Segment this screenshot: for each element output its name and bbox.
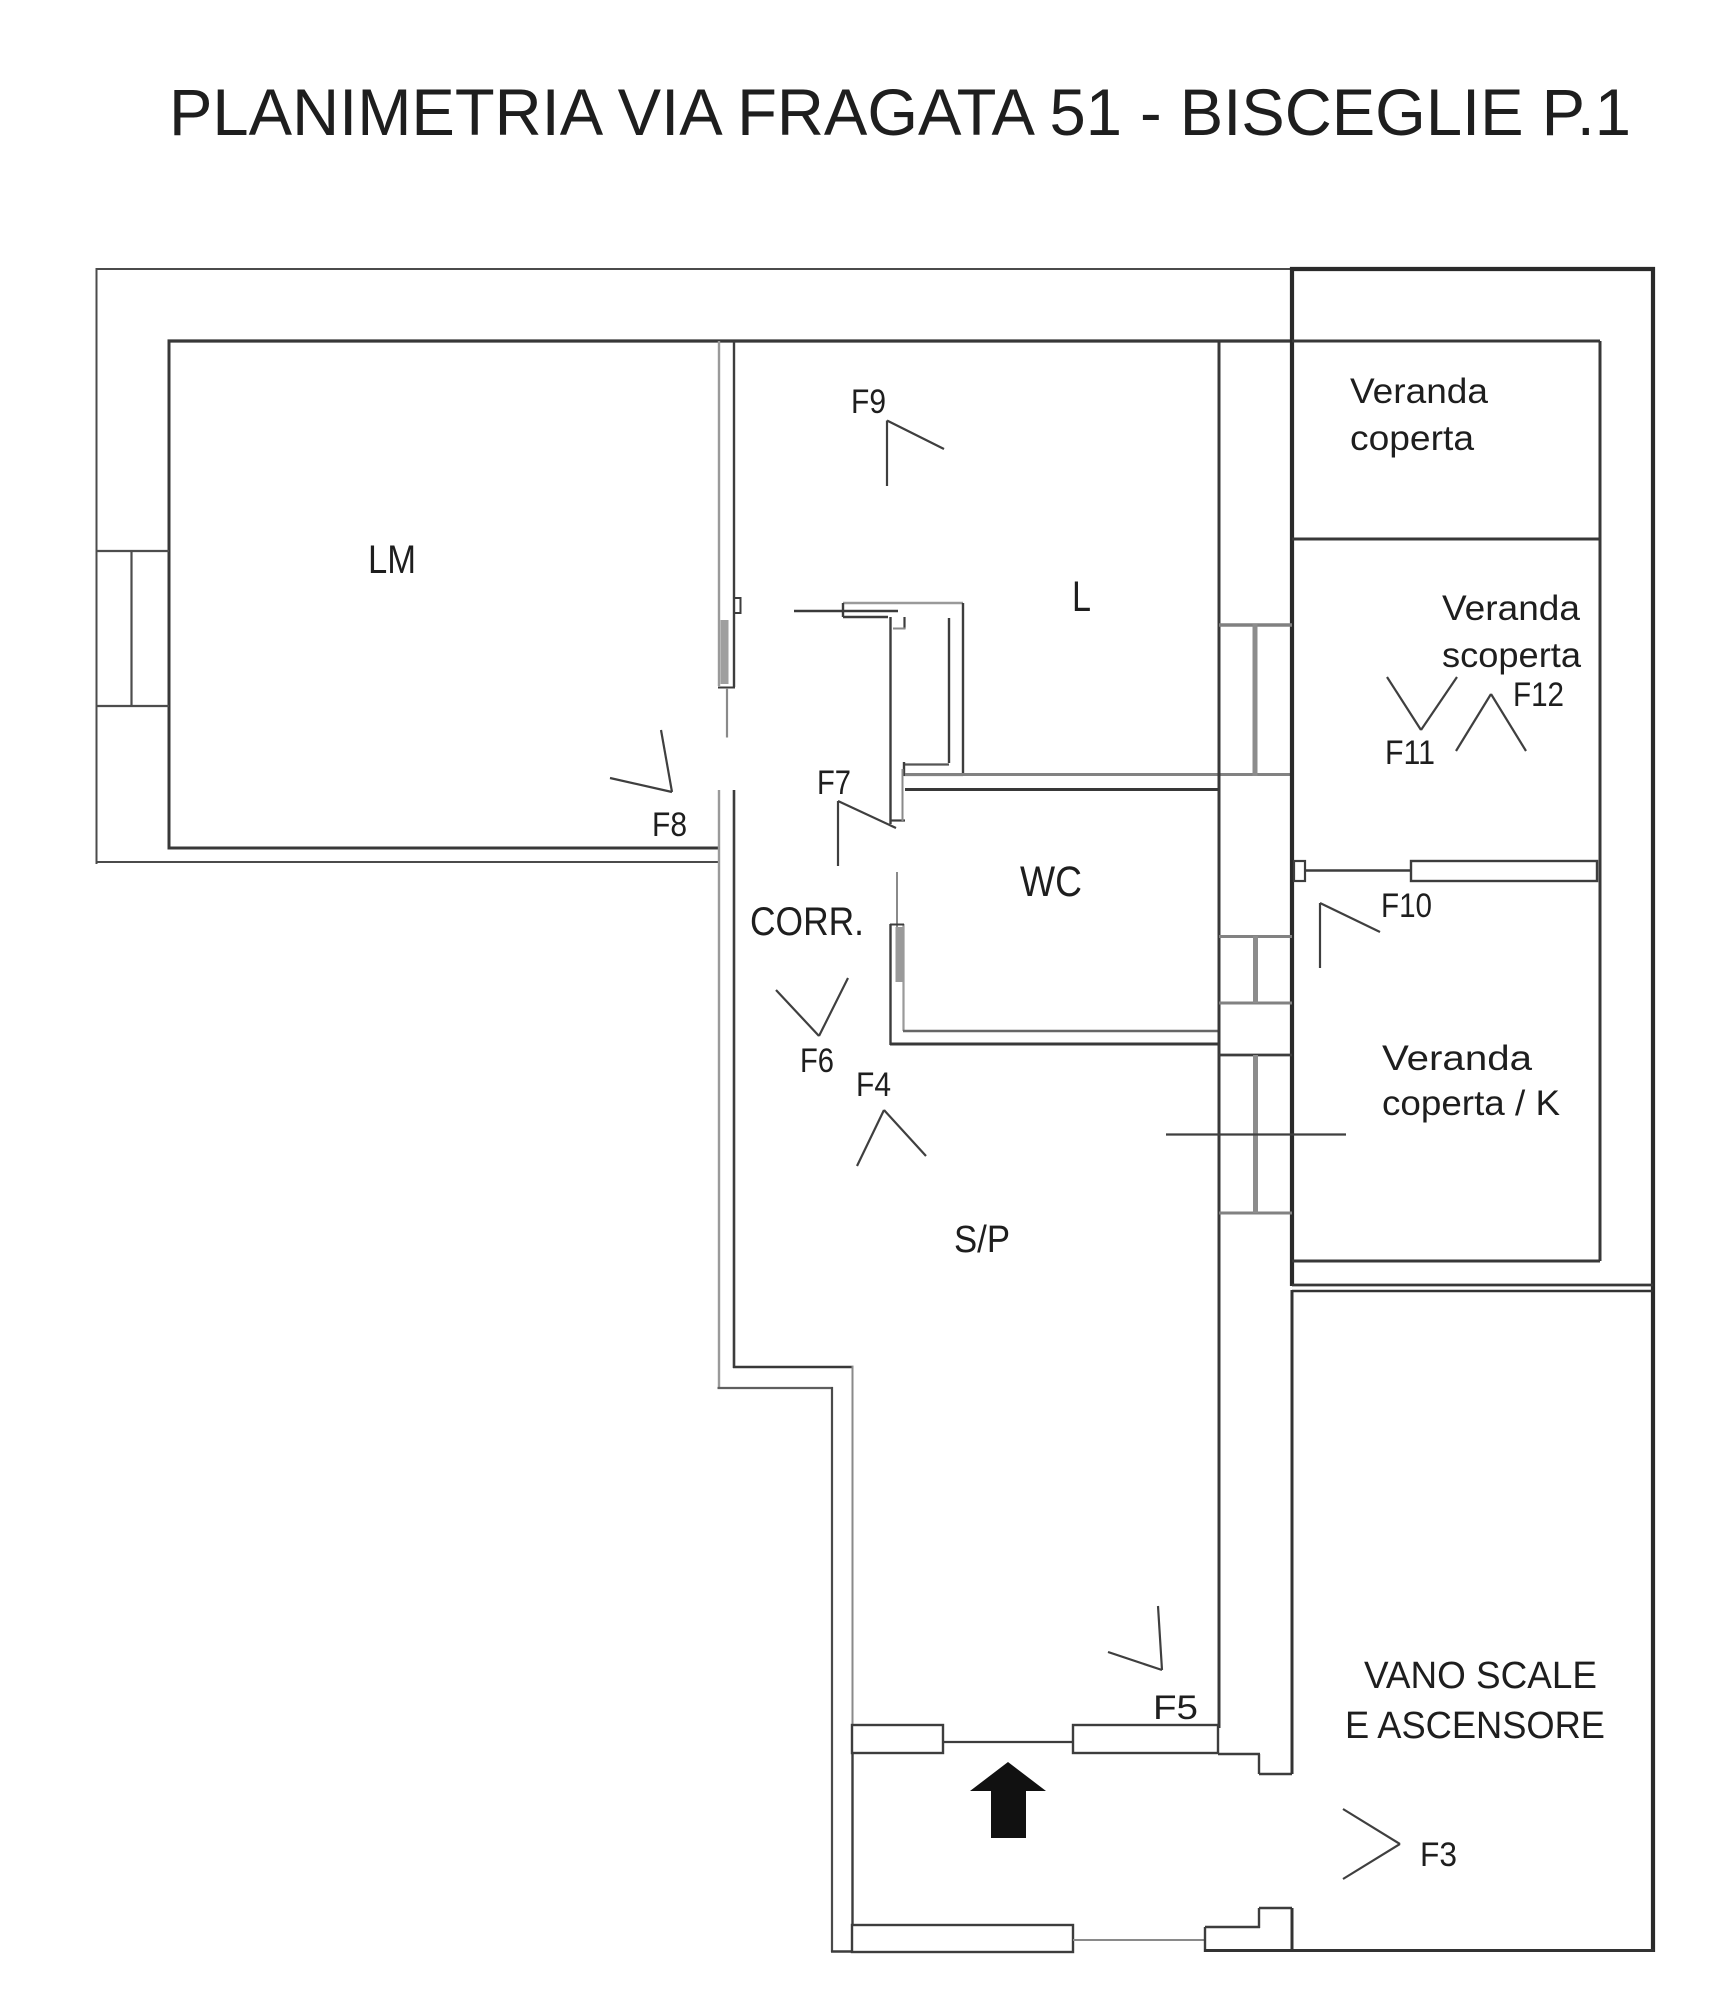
svg-text:PLANIMETRIA VIA FRAGATA 51 - B: PLANIMETRIA VIA FRAGATA 51 - BISCEGLIE P… xyxy=(169,75,1631,149)
svg-text:F11: F11 xyxy=(1385,734,1435,772)
svg-text:scoperta: scoperta xyxy=(1442,636,1582,675)
svg-text:F6: F6 xyxy=(800,1042,834,1080)
svg-text:F9: F9 xyxy=(851,383,886,421)
svg-text:F7: F7 xyxy=(817,764,851,802)
svg-text:S/P: S/P xyxy=(954,1219,1010,1261)
svg-text:Veranda: Veranda xyxy=(1382,1039,1533,1078)
svg-text:F3: F3 xyxy=(1420,1836,1457,1874)
svg-text:Veranda: Veranda xyxy=(1350,372,1489,411)
svg-text:LM: LM xyxy=(368,538,416,582)
svg-text:F10: F10 xyxy=(1381,887,1432,925)
svg-text:CORR.: CORR. xyxy=(750,900,864,944)
svg-text:Veranda: Veranda xyxy=(1442,589,1581,628)
svg-text:F5: F5 xyxy=(1153,1689,1198,1727)
svg-text:coperta: coperta xyxy=(1350,419,1475,458)
svg-text:E ASCENSORE: E ASCENSORE xyxy=(1345,1705,1605,1747)
svg-text:F12: F12 xyxy=(1513,676,1564,714)
svg-text:L: L xyxy=(1072,573,1091,621)
svg-text:VANO SCALE: VANO SCALE xyxy=(1364,1655,1597,1697)
svg-text:F4: F4 xyxy=(856,1066,891,1104)
svg-text:WC: WC xyxy=(1020,858,1082,906)
svg-text:coperta / K: coperta / K xyxy=(1382,1084,1560,1123)
svg-text:F8: F8 xyxy=(652,806,687,844)
